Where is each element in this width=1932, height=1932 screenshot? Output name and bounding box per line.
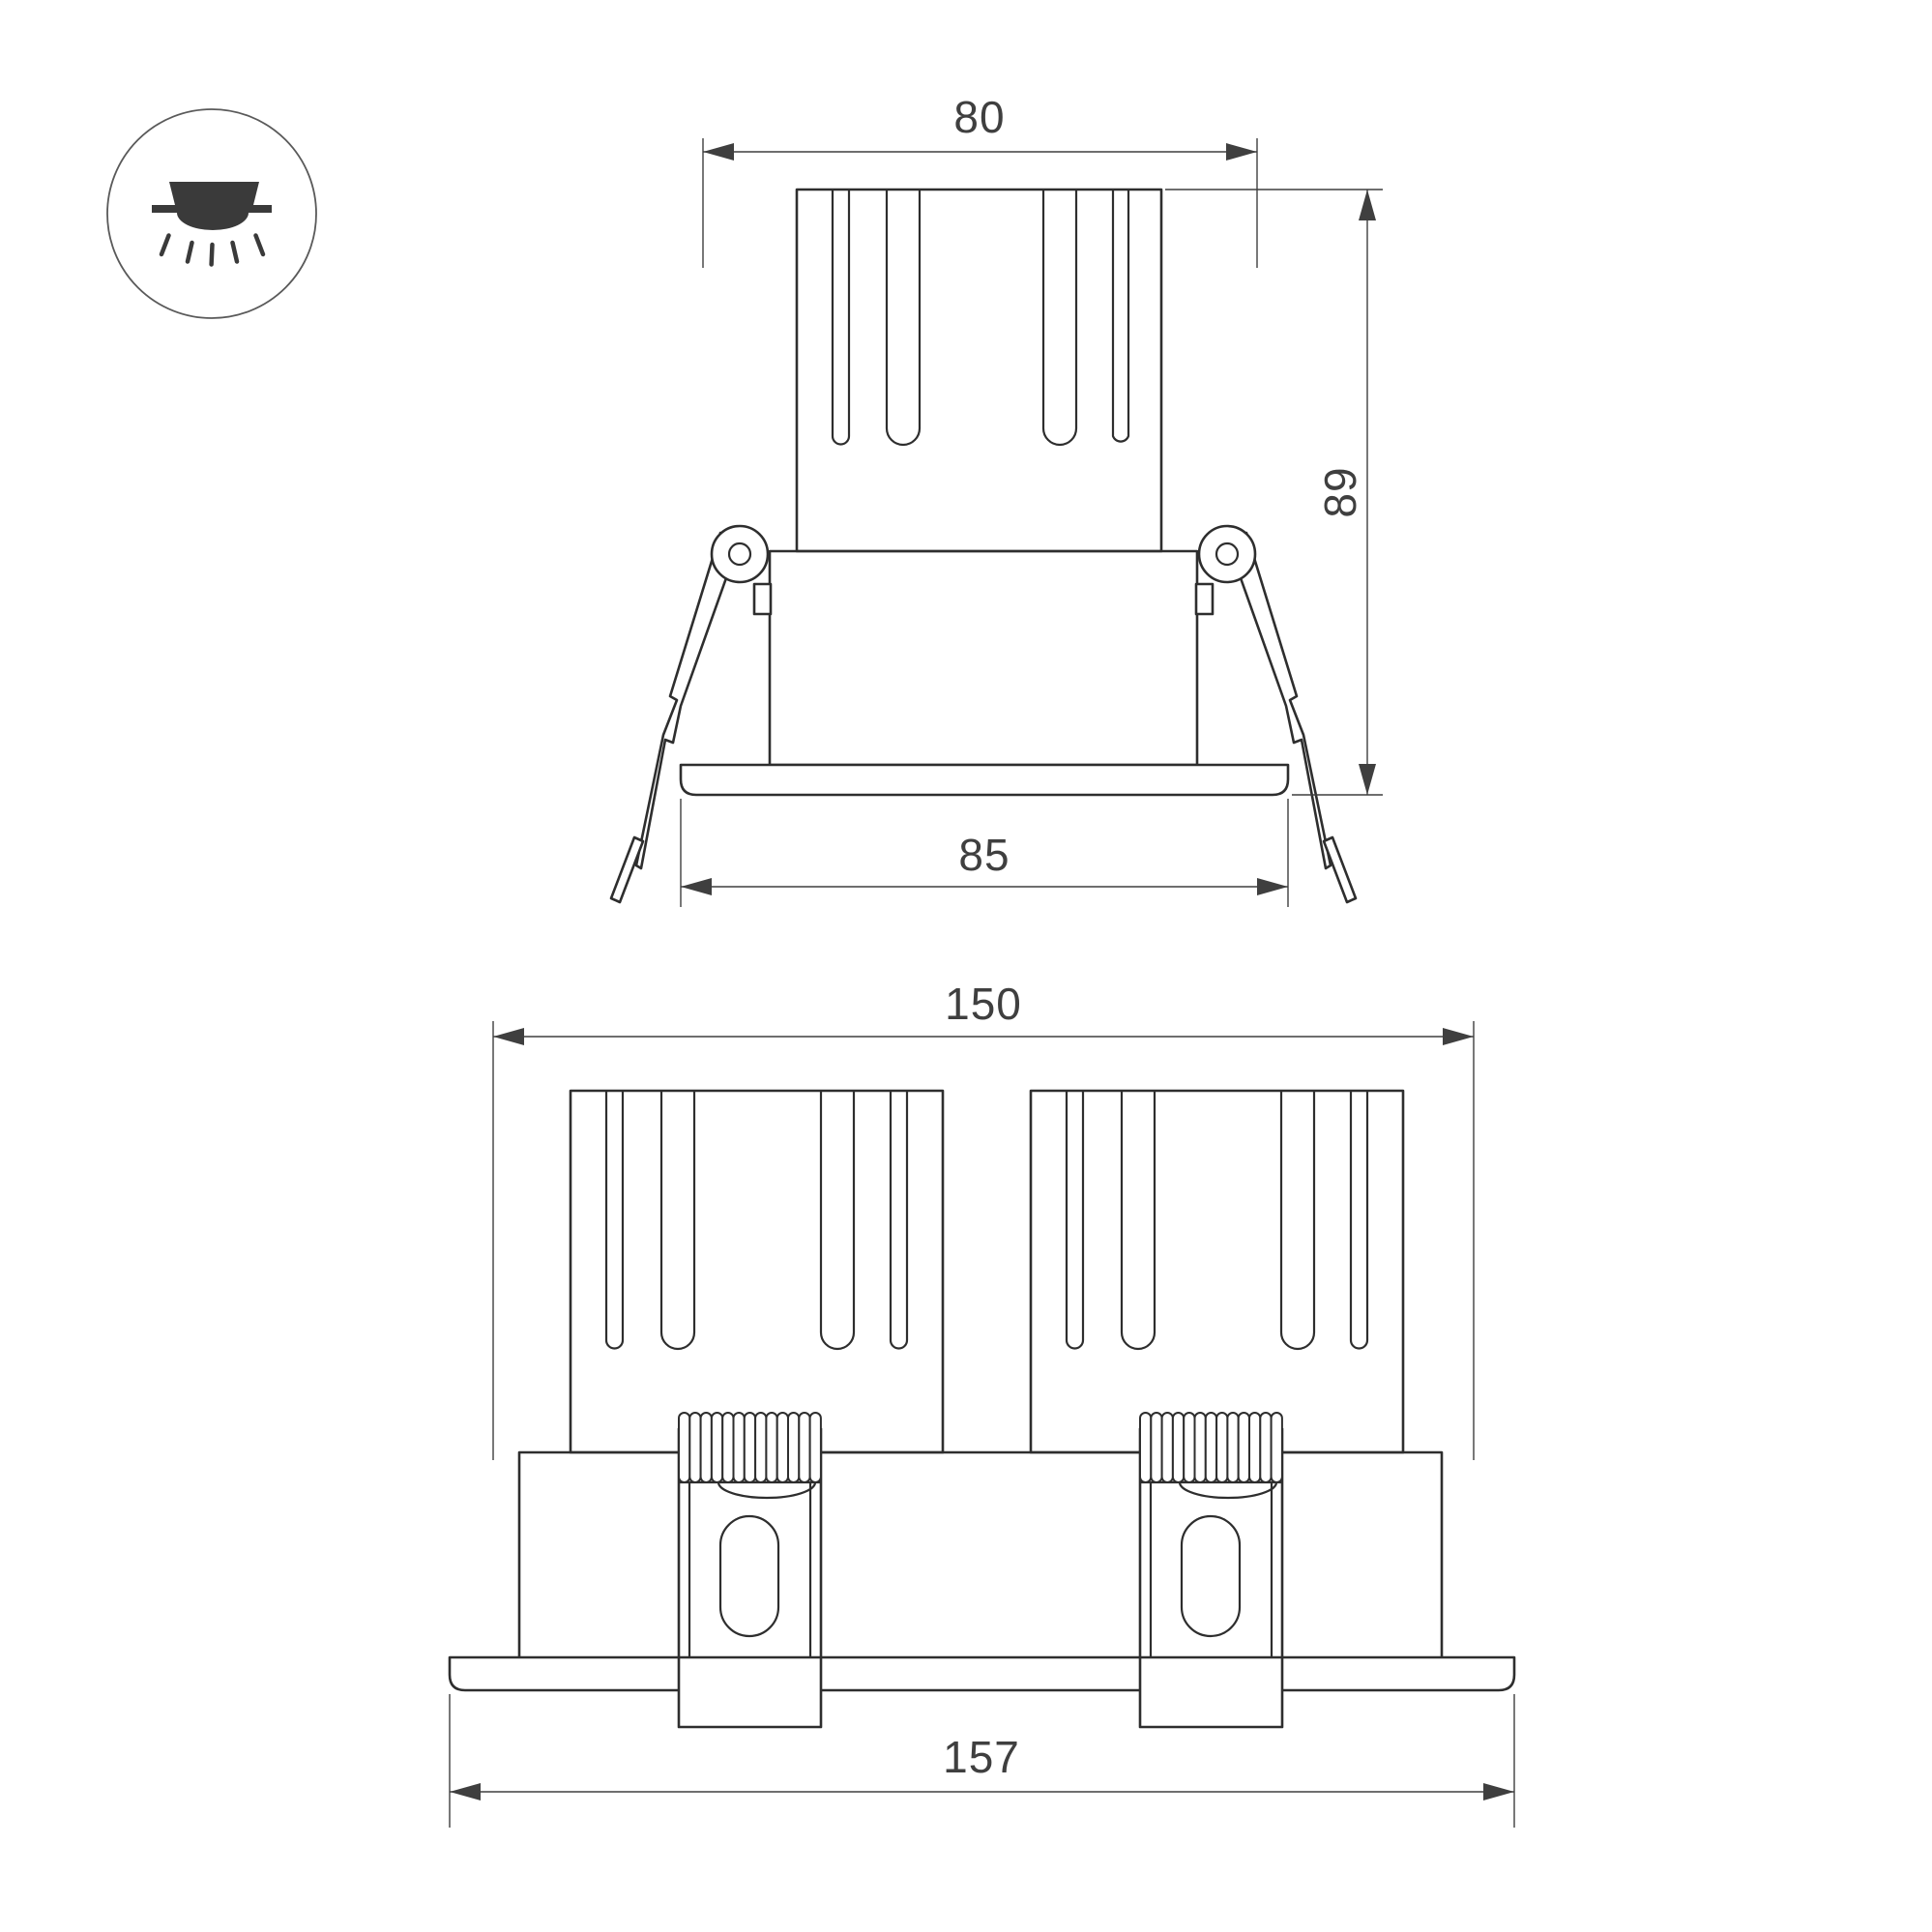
arrowhead [1359, 190, 1376, 220]
dimension-top-width-double: 150 [493, 979, 1474, 1460]
fin-slot [891, 1092, 907, 1349]
dim-label-height-single: 89 [1315, 466, 1365, 517]
arrowhead [493, 1028, 524, 1045]
spring-clip-right [1196, 526, 1356, 902]
arrowhead [1226, 143, 1257, 161]
arrowhead [681, 878, 712, 895]
fixing-bracket-left [679, 1412, 821, 1727]
spring-clip-left [611, 526, 771, 902]
arrowhead [1443, 1028, 1474, 1045]
clip-foot [611, 837, 643, 902]
dimension-flange-width-single: 85 [681, 799, 1288, 907]
fin-slot [1113, 190, 1128, 442]
lamp-body [770, 551, 1197, 765]
clip-pivot-hole [729, 543, 750, 565]
dim-label-flange-width-double: 157 [943, 1732, 1020, 1782]
wire-coil [679, 1413, 821, 1482]
bracket-foot-block [679, 1657, 821, 1727]
trim-flange-single [681, 765, 1288, 795]
clip-arm [636, 533, 727, 868]
fin-slot [1043, 190, 1076, 445]
trim-flange-double [450, 1657, 1514, 1690]
arrowhead [1257, 878, 1288, 895]
mounting-frame [519, 1452, 1442, 1657]
clip-mount-tab [754, 584, 771, 614]
arrowhead [703, 143, 734, 161]
technical-drawing-canvas: 80 89 85 [0, 0, 1932, 1932]
arrowhead [1483, 1783, 1514, 1800]
fin-slot [887, 190, 920, 445]
heatsink-right [1031, 1091, 1403, 1452]
fixing-bracket-right [1140, 1412, 1282, 1727]
icon-light-rays [161, 236, 263, 265]
dimension-top-width-single: 80 [703, 92, 1257, 268]
fin-slot [821, 1092, 854, 1349]
icon-housing [169, 182, 259, 205]
dimension-flange-width-double: 157 [450, 1694, 1514, 1828]
single-unit-front-view: 80 89 85 [611, 92, 1383, 907]
fin-slot [661, 1092, 694, 1349]
arrowhead [450, 1783, 481, 1800]
double-unit-front-view: 150 157 [450, 979, 1514, 1828]
dim-label-top-width-single: 80 [953, 92, 1005, 142]
icon-trim-bar [152, 205, 272, 213]
heatsink-left [571, 1091, 943, 1452]
fin-slot [606, 1092, 623, 1349]
arrowhead [1359, 764, 1376, 795]
fin-slot [833, 190, 849, 445]
icon-diffuser-dome [177, 213, 249, 230]
dim-label-top-width-double: 150 [945, 979, 1022, 1029]
heatsink-single [797, 190, 1161, 551]
technical-drawing-page: 80 89 85 [0, 0, 1932, 1932]
dim-label-flange-width-single: 85 [958, 830, 1010, 880]
recessed-downlight-icon [107, 109, 316, 318]
